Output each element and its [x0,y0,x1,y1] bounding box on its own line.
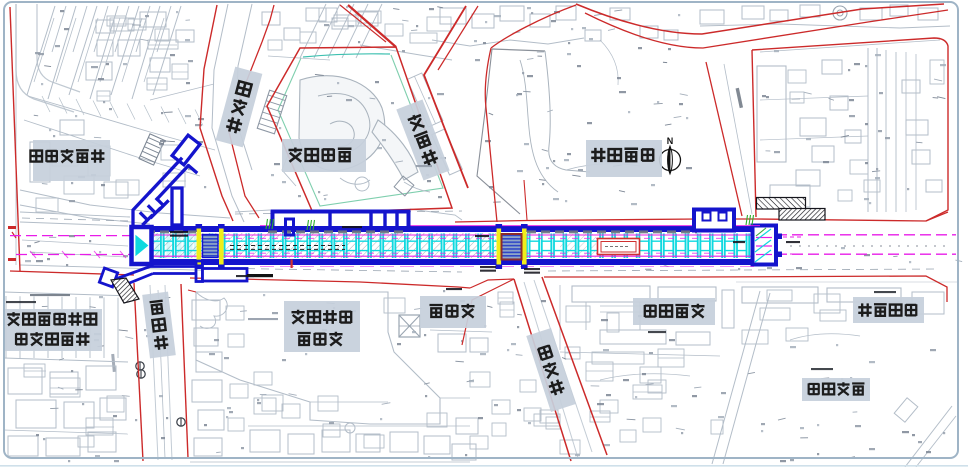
svg-text:N: N [667,136,674,146]
